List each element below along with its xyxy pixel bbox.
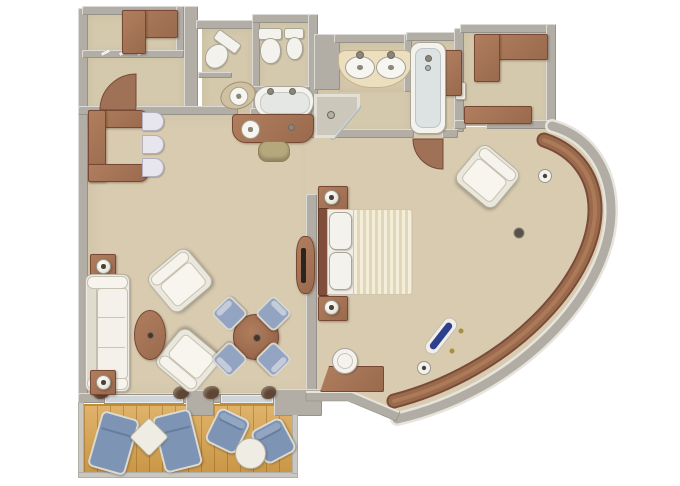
striped-duvet <box>353 209 413 295</box>
pillow <box>329 252 352 290</box>
suite-floorplan <box>0 0 680 486</box>
executive-desk-bottom <box>88 164 148 182</box>
dark-knob <box>514 228 524 238</box>
navy-spyglass <box>423 315 460 357</box>
double-bed <box>318 208 412 294</box>
ledge-lamp <box>539 170 552 183</box>
vanity-sink <box>376 56 406 79</box>
wall <box>334 34 412 43</box>
sliding-glass-door <box>104 394 184 404</box>
round-deck-table <box>235 438 266 469</box>
wall <box>252 14 316 23</box>
bathroom-door-swing <box>413 139 443 169</box>
tub-interior <box>260 92 310 114</box>
bedroom-armchair <box>452 141 523 211</box>
sink-basin <box>227 84 251 108</box>
oval-coffee-table <box>134 310 166 360</box>
sofa-cushions <box>97 288 128 379</box>
veranda-railing-bottom <box>78 472 298 478</box>
bathtub-drain <box>425 65 431 71</box>
nightstand-lamp <box>324 190 339 205</box>
corner-block <box>274 389 322 416</box>
pillow <box>329 212 352 250</box>
wall <box>442 129 458 138</box>
console-knob <box>288 124 295 131</box>
nightstand-lamp <box>324 300 339 315</box>
closet-lower-cabinet <box>464 106 532 124</box>
sofa-cushion-line <box>98 317 125 318</box>
table-lamp <box>96 375 111 390</box>
desk-chair <box>142 112 164 131</box>
console-basin <box>241 120 260 139</box>
table-center <box>147 332 154 339</box>
bath-side-cabinet <box>444 50 462 96</box>
entry-wardrobe-arm <box>122 10 146 54</box>
bidet-bowl <box>286 37 303 60</box>
wc-toilet-bowl <box>260 38 281 64</box>
desk-chair <box>142 158 164 177</box>
shower-drain <box>327 111 335 119</box>
vanity-faucet <box>387 51 395 59</box>
bedroom-desk-stool <box>332 348 358 374</box>
tub-faucet <box>289 88 296 95</box>
bathtub-faucet <box>425 55 432 62</box>
vanity-console <box>232 114 314 143</box>
sofa-cushion-line <box>98 347 125 348</box>
vanity-stool <box>258 141 290 162</box>
tub-faucet <box>267 88 274 95</box>
vanity-sink <box>345 56 375 79</box>
entry-hall-floor <box>86 54 186 110</box>
table-center <box>253 334 261 342</box>
desk-chair <box>142 135 164 154</box>
tv-console <box>296 236 315 294</box>
stool-shade <box>337 353 353 369</box>
wall <box>306 194 317 400</box>
vanity-faucet <box>356 51 364 59</box>
sofa-back <box>87 285 97 381</box>
table-lamp <box>96 259 111 274</box>
wall <box>196 20 258 29</box>
closet-upper-cabinet-arm <box>474 34 500 82</box>
wall <box>460 24 556 33</box>
wall <box>198 72 232 78</box>
tv <box>301 248 306 283</box>
veranda-railing-left <box>78 402 84 478</box>
bathtub <box>410 42 446 134</box>
ledge-lamp <box>418 362 431 375</box>
